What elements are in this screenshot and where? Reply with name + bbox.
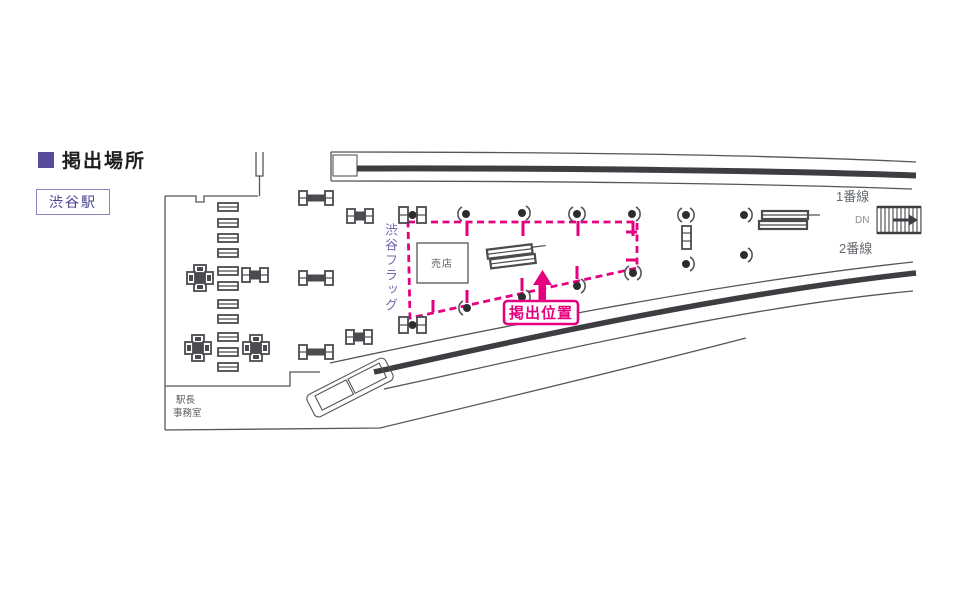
sign-pillar-icon (682, 226, 691, 249)
pillar-icon (682, 257, 694, 271)
pillar-icon (409, 211, 417, 219)
stair-tread (218, 249, 238, 257)
stair-tread (218, 315, 238, 323)
stair-tread (218, 348, 238, 356)
track1-platform-edge (331, 152, 916, 189)
top-wall (165, 196, 258, 202)
slanted-bench-icon (487, 243, 548, 269)
cross-kiosk-icon (187, 265, 213, 291)
pillar-icon (459, 301, 471, 315)
escalator-step-1 (315, 380, 353, 410)
escalator (305, 356, 395, 418)
stair-tread (218, 267, 238, 275)
stairs-label: DN (855, 215, 869, 226)
track1-fence-bar (357, 168, 916, 175)
callout-arrow-head (533, 270, 552, 285)
bench-icon (346, 330, 372, 344)
platform-furniture (185, 191, 820, 361)
pillar-icon (628, 207, 640, 221)
stairs-ladder (218, 203, 238, 371)
station-map: 売店 (0, 0, 960, 604)
office-label-line2: 事務室 (173, 407, 202, 419)
cross-kiosk-icon (243, 335, 269, 361)
office-wall (165, 372, 320, 386)
bench-icon (347, 209, 373, 223)
track1-label: 1番線 (836, 189, 869, 204)
band-left-box (333, 155, 357, 176)
stair-tread (218, 333, 238, 341)
pillar-icon (740, 248, 752, 262)
band-top-line (331, 152, 916, 162)
bench-icon (242, 268, 268, 282)
pillar-icon (678, 208, 694, 222)
position-callout: 掲出位置 (504, 270, 578, 324)
double-bench-icon (759, 211, 820, 229)
stair-tread (218, 282, 238, 290)
stair-tread (218, 203, 238, 211)
bench-icon (299, 191, 333, 205)
stair-tread (218, 363, 238, 371)
stair-tread (218, 219, 238, 227)
callout-arrow-shaft (539, 284, 547, 301)
pillar-icon (518, 206, 530, 220)
pillar-icon (409, 321, 417, 329)
pillar-icon (569, 207, 585, 221)
page: 掲出場所 渋谷駅 渋谷フラッグ (0, 0, 960, 604)
bench-icon (299, 271, 333, 285)
floor-outline (165, 152, 746, 430)
cross-kiosk-icon (185, 335, 211, 361)
kiosk-label: 売店 (431, 257, 453, 270)
pillar-icon (740, 208, 752, 222)
wall-fork (256, 152, 263, 176)
down-stairs-icon (877, 207, 921, 233)
office-label-line1: 駅長 (176, 395, 196, 406)
track2-fence-bar (374, 273, 916, 372)
stair-tread (218, 234, 238, 242)
band-bottom-line (331, 181, 912, 189)
pillar-icon (458, 207, 470, 221)
position-label: 掲出位置 (509, 304, 573, 322)
stair-tread (218, 300, 238, 308)
bench-icon (299, 345, 333, 359)
track2-label: 2番線 (839, 241, 872, 256)
escalator-step-2 (348, 363, 386, 393)
